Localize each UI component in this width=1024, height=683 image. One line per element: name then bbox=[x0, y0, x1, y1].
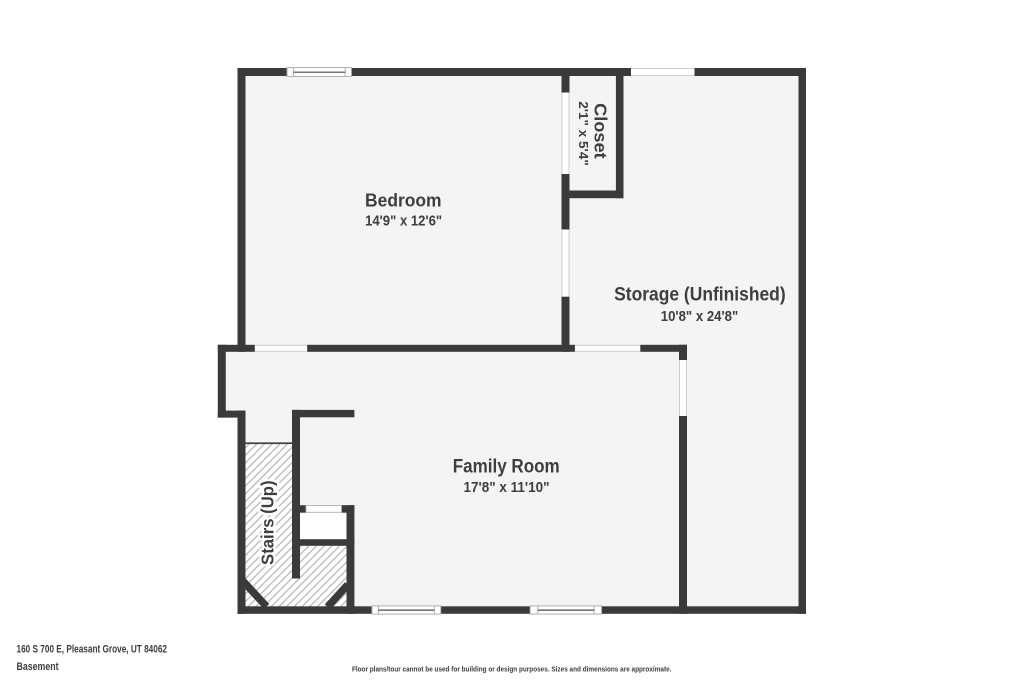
svg-text:Closet: Closet bbox=[591, 103, 611, 159]
svg-text:Stairs (Up): Stairs (Up) bbox=[258, 480, 278, 565]
svg-text:2'1" x 5'4": 2'1" x 5'4" bbox=[576, 101, 591, 166]
svg-text:Floor plans/tour cannot be use: Floor plans/tour cannot be used for buil… bbox=[352, 666, 672, 673]
svg-text:Basement: Basement bbox=[17, 661, 59, 673]
svg-text:10'8" x 24'8": 10'8" x 24'8" bbox=[661, 308, 739, 325]
svg-text:Family Room: Family Room bbox=[453, 457, 560, 478]
svg-text:Storage (Unfinished): Storage (Unfinished) bbox=[614, 285, 786, 306]
svg-text:17'8" x 11'10": 17'8" x 11'10" bbox=[464, 479, 550, 496]
svg-text:Bedroom: Bedroom bbox=[365, 190, 442, 211]
svg-text:160 S 700 E, Pleasant Grove, U: 160 S 700 E, Pleasant Grove, UT 84062 bbox=[17, 643, 168, 655]
svg-text:14'9" x 12'6": 14'9" x 12'6" bbox=[365, 213, 442, 230]
